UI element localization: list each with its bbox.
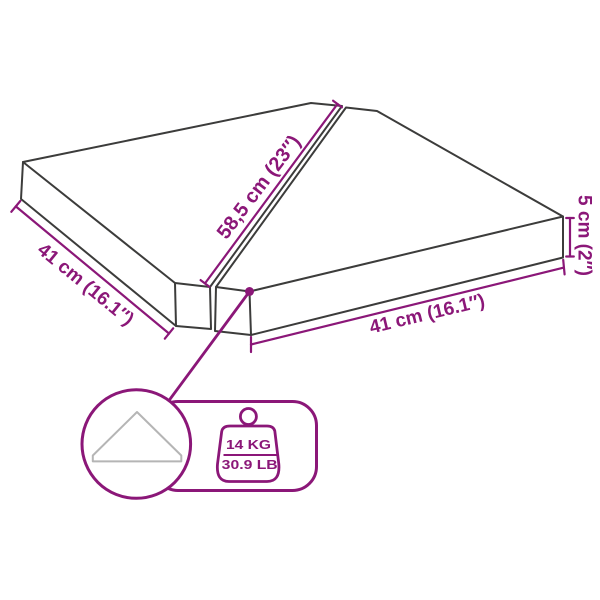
svg-text:30.9 LB: 30.9 LB [222,457,278,472]
svg-text:5 cm (2″): 5 cm (2″) [574,195,595,276]
svg-text:14 KG: 14 KG [226,437,271,452]
